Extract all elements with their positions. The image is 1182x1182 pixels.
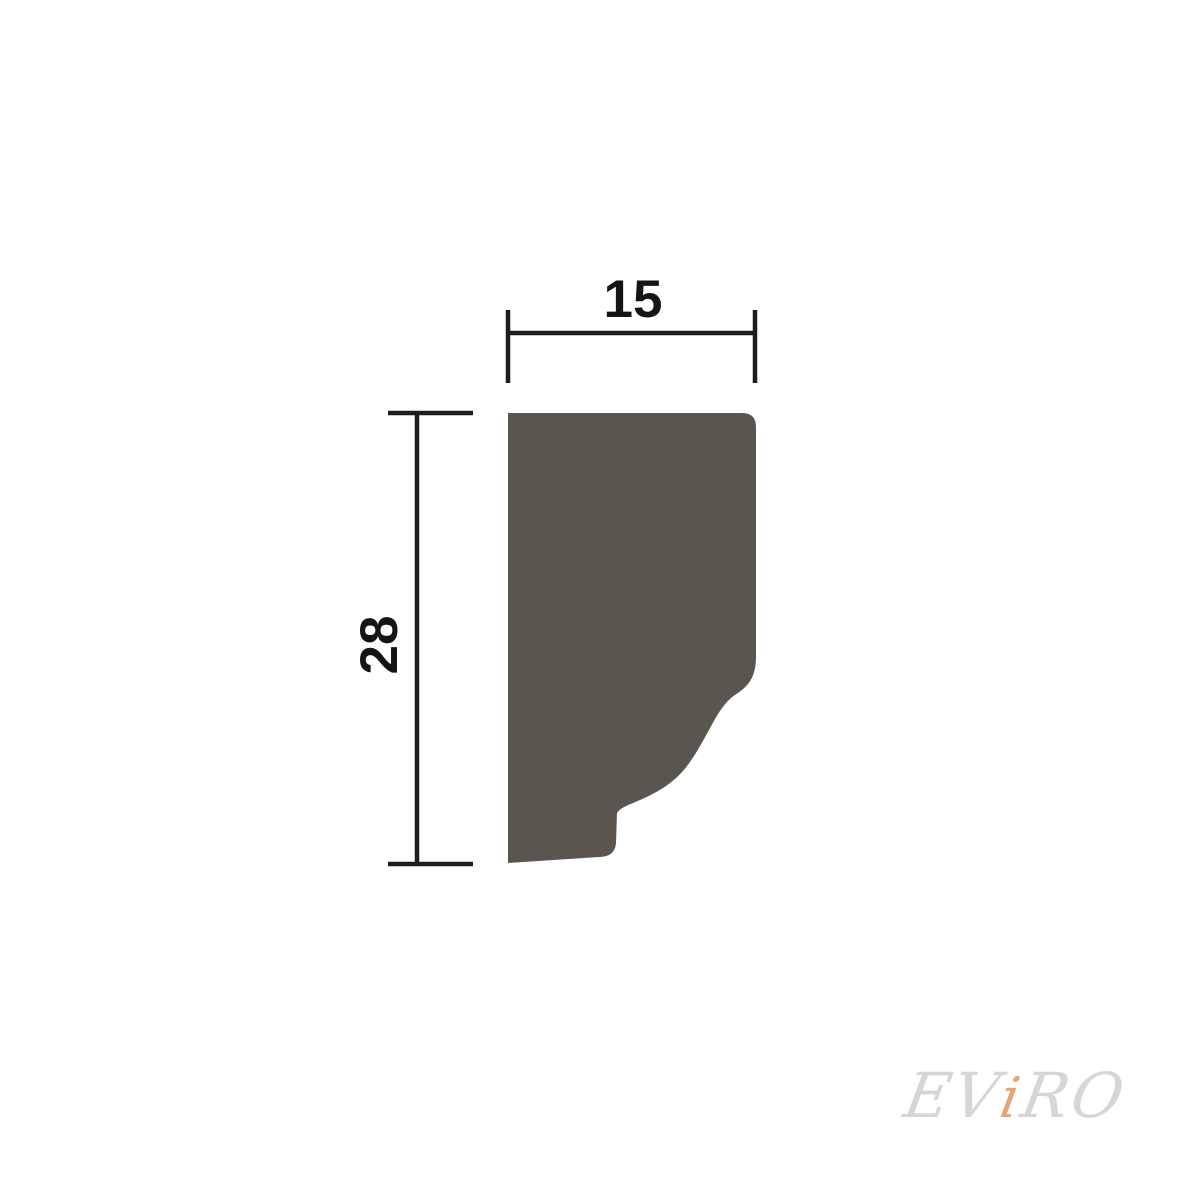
drawing-canvas: 15 28 EViRO [0,0,1182,1182]
watermark-eviro: EViRO [898,1058,1152,1138]
technical-drawing: 15 28 [0,0,1182,1182]
width-dim-label: 15 [604,270,663,329]
watermark-text-suffix: RO [1016,1059,1132,1132]
molding-profile-shape [508,413,756,863]
height-dim-label: 28 [350,616,409,675]
watermark-text-prefix: EV [899,1059,1008,1132]
